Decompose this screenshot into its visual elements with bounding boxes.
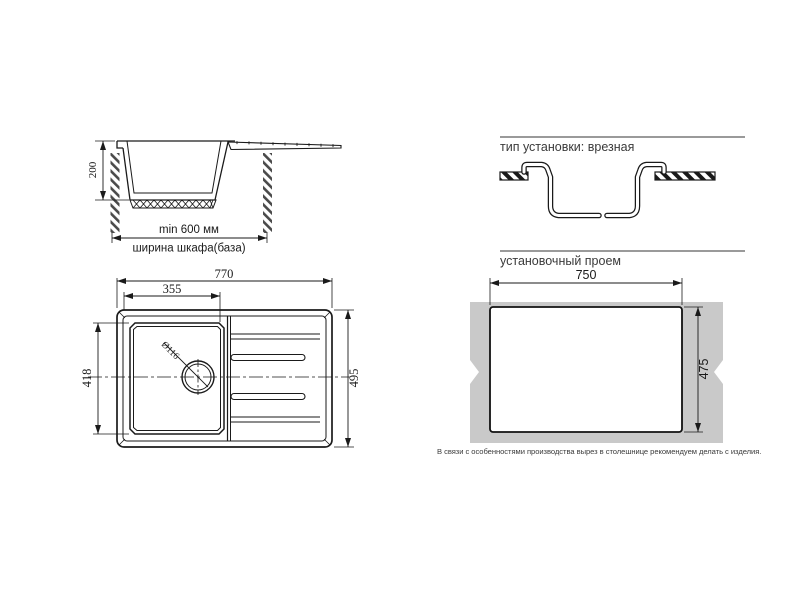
cutout-drawing: 750 475: [435, 265, 775, 460]
bowl-outline: [130, 323, 224, 434]
dim-bowl-width-label: 355: [163, 282, 182, 296]
install-type-rule: [500, 136, 745, 138]
drain-hole: Ø116: [159, 340, 214, 393]
dim-depth-label: 200: [87, 161, 99, 178]
install-type-header: тип установки: врезная: [500, 140, 634, 154]
dim-cutout-height-label: 475: [697, 359, 711, 380]
install-type-drawing: [495, 155, 755, 245]
dim-overall-width: 770: [117, 267, 332, 308]
dim-overall-width-label: 770: [215, 267, 234, 281]
drainboard-grooves: [231, 334, 320, 422]
dim-cutout-width-label: 750: [576, 268, 597, 282]
cabinet-wall-left: [111, 153, 120, 233]
dim-bowl-depth: 418: [80, 323, 129, 434]
bowl-bottom-hatch: [133, 200, 213, 208]
cabinet-wall-right: [263, 153, 272, 233]
dim-bowl-depth-label: 418: [80, 369, 94, 388]
cabinet-label: ширина шкафа(база): [132, 243, 245, 255]
side-view-drawing: 200 min 600 мм ширина шкафа(база): [85, 130, 365, 255]
inset-rim-profile: [524, 165, 664, 216]
dim-cabinet-width: min 600 мм ширина шкафа(база): [112, 224, 267, 255]
production-note: В связи с особенностями производства выр…: [437, 447, 777, 456]
dim-cutout-width: 750: [490, 268, 682, 305]
drain-diameter-label: Ø116: [159, 340, 181, 362]
drainboard-side: [228, 142, 341, 150]
dim-overall-depth-label: 495: [347, 369, 361, 388]
min-width-label: min 600 мм: [159, 224, 219, 236]
cutout-opening: [490, 307, 682, 432]
dim-overall-depth: 495: [334, 310, 361, 447]
cutout-rule: [500, 250, 745, 252]
sink-plan-body: Ø116: [88, 310, 350, 447]
plan-view-drawing: Ø116 770 355 418 495: [60, 265, 370, 470]
sink-side-profile: [117, 141, 341, 208]
sink-spec-sheet: 200 min 600 мм ширина шкафа(база) тип ус…: [0, 0, 800, 600]
